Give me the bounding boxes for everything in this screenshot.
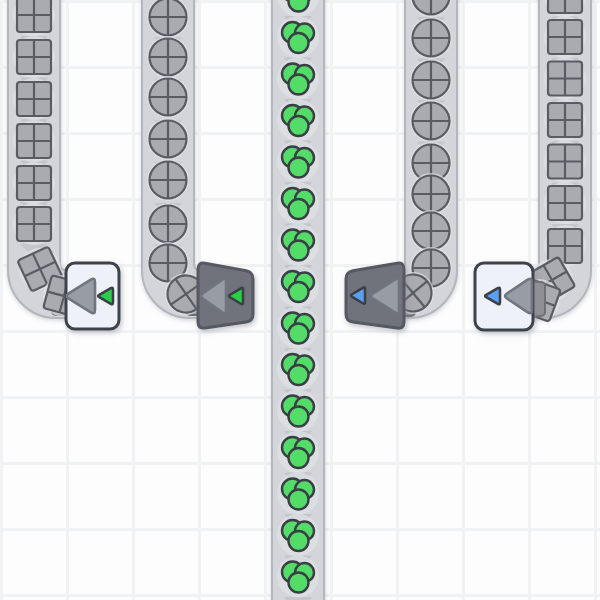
belt-item-quartered-circle (147, 36, 189, 78)
belt-item-quartered-circle (410, 59, 452, 101)
belt-item-quartered-circle (147, 76, 189, 118)
launcher-building-3[interactable] (346, 263, 404, 328)
belt-item-quartered-square (13, 0, 55, 36)
belt-item-quartered-circle (410, 173, 452, 215)
belt-item-green-cluster (277, 556, 319, 598)
belt-item-green-cluster (277, 224, 319, 266)
belt-item-quartered-square (544, 16, 586, 58)
belt-item-quartered-circle (410, 210, 452, 252)
belt-item-green-cluster (277, 265, 319, 307)
factory-scene-canvas[interactable] (0, 0, 600, 600)
belt-item-quartered-square (13, 203, 55, 245)
belt-item-quartered-square (13, 36, 55, 78)
belt-item-green-cluster (277, 390, 319, 432)
belt-item-green-cluster (277, 99, 319, 141)
belt-item-green-cluster (277, 16, 319, 58)
belt-item-green-cluster (277, 514, 319, 556)
belt-item-quartered-square (13, 162, 55, 204)
belt-item-quartered-square (13, 120, 55, 162)
belt-item-quartered-circle (147, 118, 189, 160)
belt-item-quartered-square (13, 78, 55, 120)
belt-item-quartered-square (544, 99, 586, 141)
belt-item-green-cluster (277, 307, 319, 349)
launcher-building-4[interactable] (475, 263, 533, 330)
belt-item-quartered-square (544, 58, 586, 100)
belt-item-quartered-square (544, 141, 586, 183)
belt-item-quartered-circle (410, 100, 452, 142)
belt-item-quartered-circle (147, 203, 189, 245)
belt-item-green-cluster (277, 182, 319, 224)
belt-item-green-cluster (277, 58, 319, 100)
belt-item-quartered-circle (147, 159, 189, 201)
game-viewport[interactable] (0, 0, 600, 600)
belt-item-green-cluster (277, 431, 319, 473)
belt-item-green-cluster (277, 348, 319, 390)
belt-item-quartered-square (544, 182, 586, 224)
belt-item-quartered-circle (410, 17, 452, 59)
launcher-building-2[interactable] (198, 263, 253, 328)
belt-item-green-cluster (277, 473, 319, 515)
belt-item-green-cluster (277, 141, 319, 183)
launcher-building-1[interactable] (66, 263, 119, 329)
